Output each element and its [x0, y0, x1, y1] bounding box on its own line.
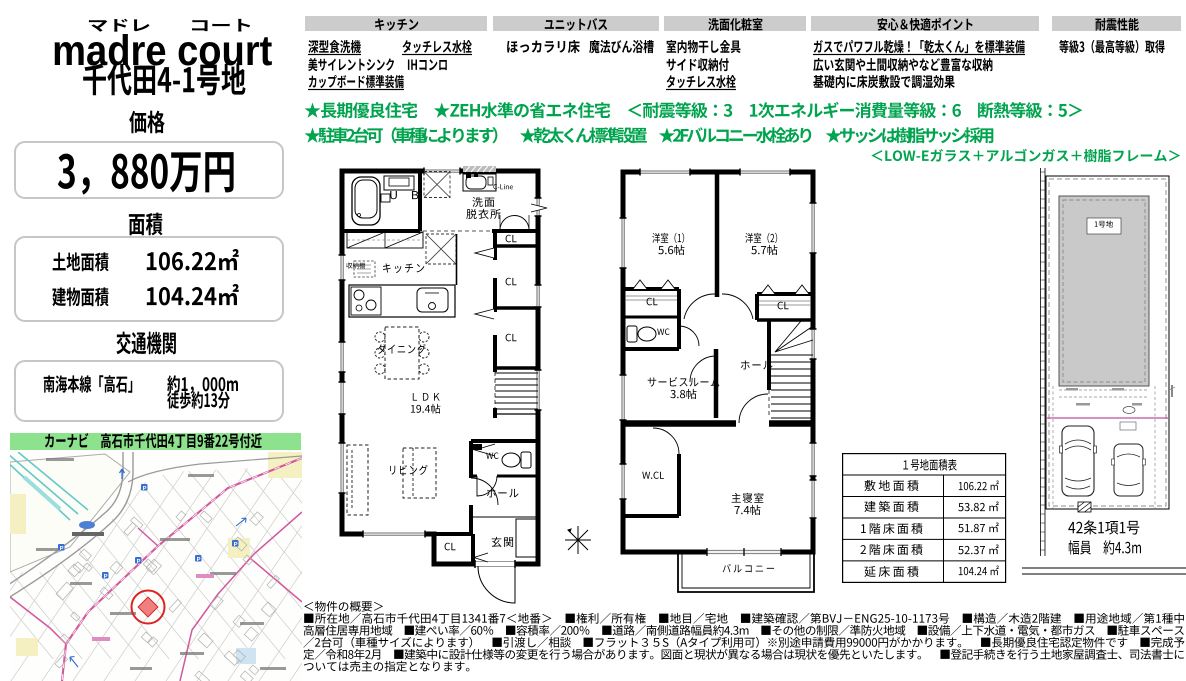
svg-text:P: P: [234, 542, 238, 548]
svg-text:P: P: [60, 546, 64, 552]
svg-text:P: P: [104, 574, 108, 580]
svg-text:P: P: [137, 559, 141, 565]
svg-text:P: P: [197, 557, 201, 563]
svg-text:P: P: [143, 486, 147, 492]
